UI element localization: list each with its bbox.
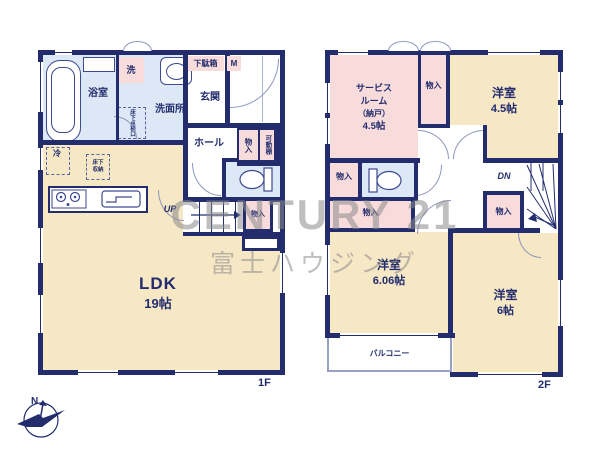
- awning-window-arc: [420, 41, 451, 51]
- closet-label: 物入: [496, 207, 512, 217]
- wall: [325, 197, 418, 201]
- door-swing-arc: [417, 200, 451, 234]
- closet-label: 物入: [251, 211, 265, 219]
- bath-counter: [83, 57, 115, 72]
- shoe-cabinet-label: 下駄箱: [194, 59, 218, 69]
- bedroom-45-size: 4.5帖: [450, 103, 558, 116]
- bedroom-45-label: 洋室: [450, 86, 558, 100]
- ldk-label: LDK: [98, 274, 218, 294]
- wall: [483, 125, 487, 163]
- wall: [38, 50, 285, 55]
- window-mark: [78, 370, 118, 375]
- hall-label: ホール: [185, 138, 233, 150]
- bedroom-606-label: 洋室: [330, 258, 448, 272]
- closet-1f-stairs: 物入: [243, 198, 273, 232]
- laundry-label: 洗: [126, 65, 135, 76]
- balcony-label: バルコニー: [370, 349, 410, 359]
- window-mark: [558, 280, 563, 326]
- closet-shelf-strip: 物入 可動棚: [237, 128, 280, 166]
- service-room-label: サービス ルーム （納戸） 4.5帖: [330, 82, 418, 133]
- down-label: DN: [492, 171, 516, 182]
- wall: [483, 158, 558, 163]
- wall: [325, 158, 420, 163]
- stairs-up: [188, 198, 243, 232]
- bathroom-label: 浴室: [79, 88, 117, 100]
- window-mark: [478, 372, 542, 377]
- window-mark: [558, 105, 563, 133]
- closet-2f-stairs: 物入: [483, 191, 524, 232]
- window-mark: [38, 62, 43, 112]
- compass-north-icon: N: [14, 392, 68, 448]
- floor-storage-label: 床下収納: [92, 160, 103, 174]
- movable-shelf: 可動棚: [260, 130, 274, 160]
- bathtub: [46, 60, 81, 142]
- kitchen-stove: [50, 188, 146, 211]
- closet-label: 物入: [330, 172, 358, 182]
- wall: [38, 370, 285, 375]
- closet-1f-upper: 物入: [239, 130, 258, 160]
- floor-plan-2f: 物入 DN バルコニー サービス ルーム （納戸） 4.5帖 物入 洋室 4.5…: [325, 50, 563, 377]
- floor-tag-1f: 1F: [258, 377, 271, 389]
- bedroom-6-size: 6帖: [453, 305, 558, 318]
- floor-tag-2f: 2F: [538, 379, 551, 391]
- door-swing-arc: [415, 165, 442, 196]
- bedroom-6-label: 洋室: [453, 288, 558, 302]
- laundry-box: 洗: [118, 57, 144, 83]
- washroom-label: 洗面所: [136, 104, 204, 116]
- wall: [358, 163, 362, 197]
- window-mark: [488, 50, 540, 55]
- door-swing-arc: [192, 163, 221, 196]
- bedroom-606-size: 6.06帖: [330, 275, 448, 288]
- bathtub-inner: [51, 67, 75, 133]
- closet-label: 物入: [420, 81, 447, 91]
- toilet-fixture-2f: [367, 167, 403, 194]
- window-mark: [38, 228, 43, 263]
- balcony: バルコニー: [327, 338, 452, 372]
- wall: [414, 163, 418, 197]
- up-label: UP: [158, 204, 182, 215]
- window-mark: [55, 50, 72, 55]
- window-mark: [38, 295, 43, 333]
- meter-label: M: [231, 59, 238, 69]
- closet-label: 物入: [244, 138, 253, 153]
- stairs-up-arrow: [188, 198, 243, 232]
- window-mark: [175, 370, 218, 375]
- toilet-fixture-1f: [238, 166, 274, 193]
- window-mark: [558, 72, 563, 100]
- fridge-label: 冷: [46, 149, 68, 159]
- door-swing-arc: [418, 130, 449, 159]
- wall: [222, 162, 226, 197]
- room-ldk: [43, 145, 183, 370]
- floor-storage: 床下収納: [86, 154, 110, 180]
- niche-box: [242, 236, 280, 251]
- window-mark: [340, 333, 438, 338]
- closet-2f-top: [421, 55, 446, 128]
- window-mark: [38, 148, 43, 170]
- wall: [325, 228, 415, 232]
- awning-window-arc: [388, 41, 419, 51]
- window-mark: [280, 253, 285, 293]
- wall: [43, 140, 188, 145]
- ldk-size-label: 19帖: [98, 296, 218, 312]
- movable-shelf-label: 可動棚: [263, 135, 271, 155]
- awning-window-arc: [123, 41, 152, 51]
- wall: [280, 50, 285, 375]
- compass-n-label: N: [31, 396, 38, 407]
- shoe-cabinet: 下駄箱: [187, 56, 224, 71]
- wall: [418, 124, 450, 128]
- room-bedroom-6: [453, 233, 558, 372]
- closet-label: 物入: [330, 208, 411, 218]
- meter-box: M: [227, 56, 241, 71]
- floor-plan-canvas: 洗 床下点検口 下駄箱 M 物入 可動棚: [0, 0, 600, 450]
- wall: [418, 55, 421, 128]
- entrance-label: 玄関: [189, 92, 231, 104]
- kitchen-counter: [48, 186, 148, 213]
- window-mark: [338, 50, 368, 55]
- floor-plan-1f: 洗 床下点検口 下駄箱 M 物入 可動棚: [38, 50, 285, 375]
